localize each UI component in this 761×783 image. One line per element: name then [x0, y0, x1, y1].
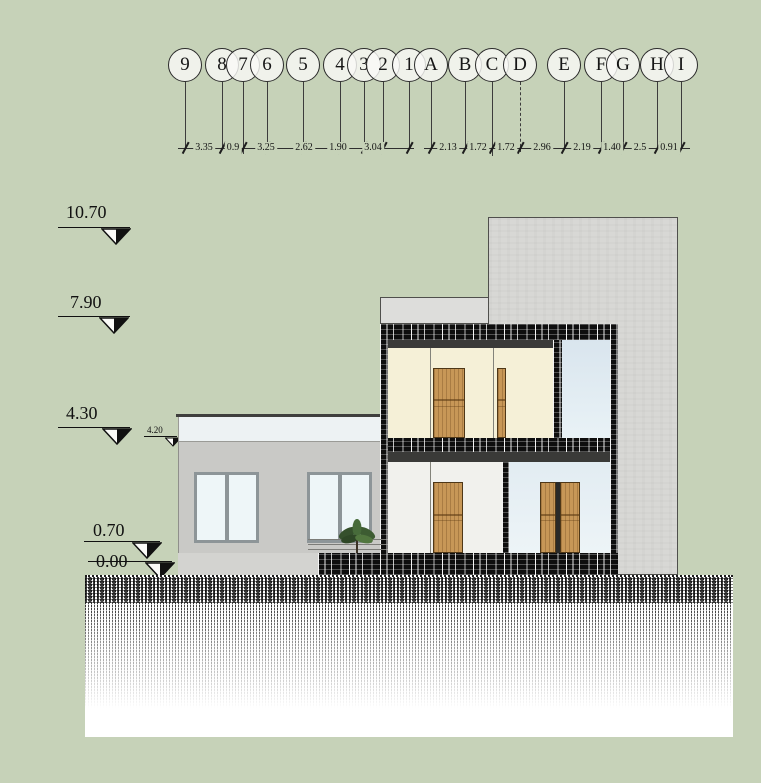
louver-band-bottom — [318, 553, 618, 575]
dim-label: 1.40 — [601, 142, 623, 154]
grid-bubble-label: 4 — [335, 54, 345, 76]
grid-line-E — [564, 82, 565, 148]
grid-line-3 — [364, 82, 365, 148]
grid-bubble-label: E — [558, 54, 570, 76]
door-upper-2 — [497, 368, 506, 438]
grid-line-8 — [222, 82, 223, 148]
dim-label: 2.96 — [531, 142, 553, 154]
grid-line-B — [465, 82, 466, 148]
edge-strip-right — [610, 324, 618, 575]
grid-line-6 — [267, 82, 268, 148]
grid-bubble-D: D — [503, 48, 537, 82]
grid-line-H — [657, 82, 658, 148]
dim-label: 0.9 — [225, 142, 242, 154]
dim-label: 3.35 — [193, 142, 215, 154]
level-triangle-icon — [101, 228, 131, 245]
grid-bubble-label: 7 — [238, 54, 248, 76]
grid-bubble-E: E — [547, 48, 581, 82]
grid-bubble-9: 9 — [168, 48, 202, 82]
ground-fade — [85, 577, 733, 737]
grid-bubble-5: 5 — [286, 48, 320, 82]
dim-label: 3.04 — [362, 142, 384, 154]
edge-strip-left — [380, 324, 388, 575]
louver-band-top — [380, 324, 618, 340]
grid-line-1 — [409, 82, 410, 148]
grid-line-5 — [303, 82, 304, 148]
door-upper-1 — [433, 368, 465, 438]
mullion-strip — [553, 340, 562, 438]
grid-bubble-6: 6 — [250, 48, 284, 82]
grid-bubble-A: A — [414, 48, 448, 82]
window-left-1 — [194, 472, 259, 543]
level-label-4-30: 4.30 — [66, 403, 98, 424]
left-block-clerestory — [178, 417, 381, 442]
dim-label: 2.19 — [571, 142, 593, 154]
level-label-4-20: 4.20 — [147, 425, 163, 435]
wall-partition — [430, 348, 431, 438]
middle-block-parapet — [380, 297, 489, 324]
level-triangle-icon — [102, 428, 132, 445]
dim-label: 1.72 — [467, 142, 489, 154]
floor-slab-band — [386, 452, 615, 462]
glass-panel-upper — [562, 340, 610, 438]
window-mullion — [225, 475, 229, 540]
grid-bubble-I: I — [664, 48, 698, 82]
grid-bubble-label: F — [596, 54, 607, 76]
dim-label: 0.91 — [658, 142, 680, 154]
grid-bubble-label: G — [616, 54, 630, 76]
wall-partition — [493, 348, 494, 438]
level-triangle-icon — [99, 317, 129, 334]
ground-hatch — [85, 575, 733, 737]
grid-bubble-label: B — [459, 54, 472, 76]
grid-bubble-label: 9 — [180, 54, 190, 76]
louver-band-middle — [380, 438, 618, 452]
dim-label: 1.90 — [327, 142, 349, 154]
dim-label: 2.5 — [632, 142, 649, 154]
grid-bubble-label: 2 — [378, 54, 388, 76]
level-label-0-70: 0.70 — [93, 520, 125, 541]
dim-label: 2.13 — [437, 142, 459, 154]
mullion-strip — [502, 462, 509, 553]
door-lower-2-leaf-right — [560, 482, 580, 553]
level-label-7-90: 7.90 — [70, 292, 102, 313]
grid-line-D — [520, 82, 521, 152]
grid-bubble-label: A — [424, 54, 438, 76]
grid-bubble-label: H — [650, 54, 664, 76]
grid-line-G — [623, 82, 624, 148]
header-band-upper — [386, 340, 557, 348]
dim-label: 2.62 — [293, 142, 315, 154]
grid-line-2 — [383, 82, 384, 148]
level-label-10-70: 10.70 — [66, 202, 107, 223]
door-lower-1 — [433, 482, 463, 553]
wall-partition — [430, 462, 431, 553]
grid-bubble-label: I — [678, 54, 684, 76]
grid-line-A — [431, 82, 432, 148]
plant-icon — [334, 516, 380, 558]
upper-floor-wall — [386, 348, 557, 438]
grid-line-4 — [340, 82, 341, 148]
dim-label: 3.25 — [255, 142, 277, 154]
door-lower-2-leaf-left — [540, 482, 556, 553]
level-triangle-icon — [132, 542, 162, 559]
grid-bubble-label: 6 — [262, 54, 272, 76]
grid-bubble-label: 1 — [404, 54, 414, 76]
grid-bubble-label: D — [513, 54, 527, 76]
dim-label: 1.72 — [495, 142, 517, 154]
grid-line-9 — [185, 82, 186, 148]
elevation-drawing: 9 8 7 6 5 4 3 2 1 3.35 0.9 3.25 2.62 1.9… — [0, 0, 761, 783]
grid-bubble-label: 5 — [298, 54, 308, 76]
grid-line-F — [601, 82, 602, 148]
grid-bubble-label: C — [486, 54, 499, 76]
grid-line-I — [681, 82, 682, 148]
grid-bubble-G: G — [606, 48, 640, 82]
